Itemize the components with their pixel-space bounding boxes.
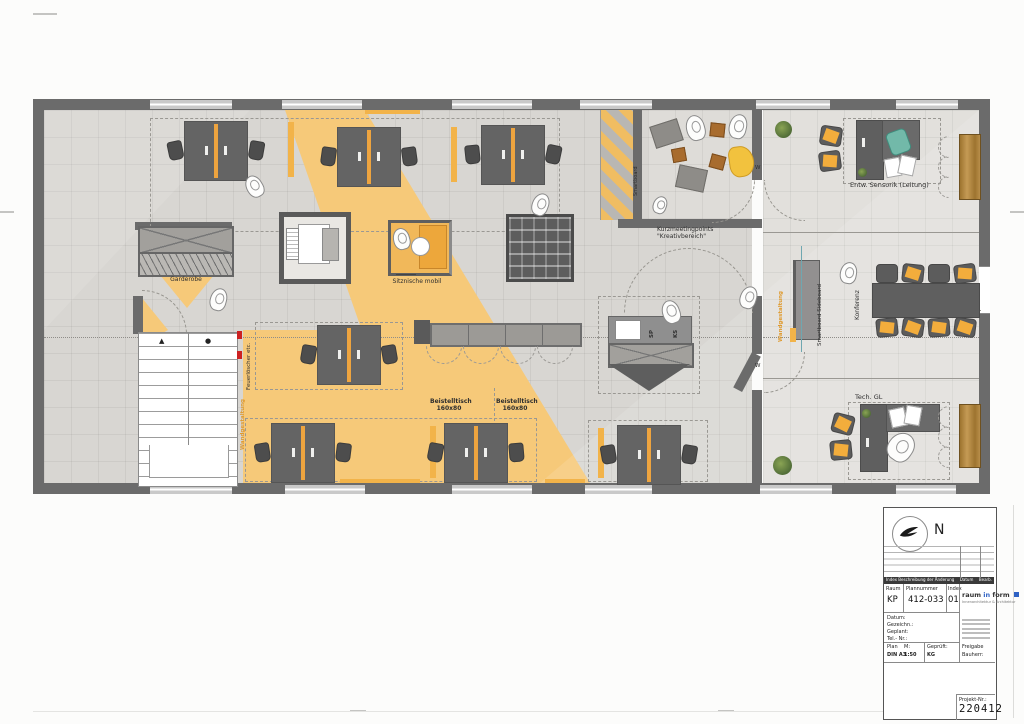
conference-chair xyxy=(928,264,950,283)
stool xyxy=(819,125,844,148)
label-sp: SP xyxy=(650,320,656,338)
window xyxy=(452,100,532,109)
wall-accent xyxy=(340,479,420,483)
project-number-cell: Projekt-Nr.: 220412 xyxy=(956,694,995,720)
wall-accent xyxy=(365,110,420,114)
office-chair xyxy=(508,442,525,462)
address-line xyxy=(962,619,990,621)
conference-chair xyxy=(901,317,925,339)
partition-line xyxy=(763,232,979,233)
drawing-sheet: Garderobe ▲ ● Feuerlöscher etc. Wandgest… xyxy=(0,0,1024,724)
label-konferenz: Konferenz xyxy=(855,280,861,320)
label-door-w: W xyxy=(755,165,760,172)
monitor xyxy=(862,138,865,147)
wood-sideboard xyxy=(959,404,981,468)
monitor xyxy=(866,438,869,447)
col-plannummer-label: Plannummer xyxy=(906,585,938,593)
north-label: N xyxy=(934,522,944,538)
logo-subtitle: Innenarchitektur & Architektur xyxy=(962,600,1015,604)
desk-cluster xyxy=(618,426,680,484)
conference-chair xyxy=(875,317,899,338)
monitor xyxy=(521,150,524,159)
chair-cushion xyxy=(957,320,974,335)
wall-partition xyxy=(752,390,762,483)
office-chair xyxy=(254,442,272,463)
label-sitznische: Sitznische mobil xyxy=(385,278,449,285)
logo-word-raum: raum xyxy=(962,591,981,599)
papers xyxy=(903,405,922,426)
crop-mark xyxy=(1010,211,1024,213)
desk-divider xyxy=(301,426,305,480)
booth-shelf xyxy=(286,228,299,260)
fire-extinguisher-icon xyxy=(237,351,242,359)
m-value: 1:50 xyxy=(904,651,916,659)
diamond-shelf xyxy=(506,214,574,282)
stair-landing xyxy=(149,445,229,478)
desk-cluster xyxy=(185,122,247,180)
crop-mark xyxy=(33,13,57,15)
window xyxy=(580,100,652,109)
revision-header-bearb: Bearb. xyxy=(979,577,992,584)
freigabe-cell: Freigabe Bauherr: xyxy=(959,642,995,663)
wood-sideboard xyxy=(959,134,981,200)
desk-divider xyxy=(647,428,651,482)
office-chair xyxy=(335,442,352,463)
stair-divider xyxy=(188,333,189,453)
window xyxy=(150,100,232,109)
address-line xyxy=(962,623,990,625)
label-wandgestaltung-left: Wandgestaltung xyxy=(241,388,247,450)
pouf xyxy=(709,122,725,137)
address-block xyxy=(962,616,990,642)
desk-cluster xyxy=(482,126,544,184)
table-line xyxy=(959,584,960,642)
address-line xyxy=(962,632,990,634)
chair-cushion xyxy=(879,321,894,333)
monitor xyxy=(292,448,295,457)
plant xyxy=(773,456,792,475)
conference-chair xyxy=(876,264,898,283)
conference-chair xyxy=(901,263,925,284)
label-feuerloescher: Feuerlöscher etc. xyxy=(247,328,253,390)
desk-divider xyxy=(367,130,371,184)
sheet-edge xyxy=(33,711,991,712)
title-block: N Index Beschreibung der Änderung Datum … xyxy=(883,507,997,720)
table-line xyxy=(960,546,961,577)
chair-cushion xyxy=(931,321,946,334)
desk-cluster xyxy=(272,424,334,482)
fields-block: Datum: Gezeichn.: Geplant: Tel.- Nr.: xyxy=(884,612,959,643)
side-table xyxy=(411,237,430,256)
window xyxy=(756,100,830,109)
label-smartboard: Smartboard xyxy=(634,150,639,196)
label-tech-gl: Tech. GL xyxy=(855,394,895,402)
fire-extinguisher-icon xyxy=(237,331,242,339)
chair-cushion xyxy=(958,268,973,280)
label-door-w: W xyxy=(755,363,760,370)
table-line xyxy=(924,642,925,662)
north-arrow-icon xyxy=(896,523,922,543)
pouf xyxy=(671,147,687,163)
freigabe-label: Freigabe Bauherr: xyxy=(962,643,995,659)
table-line xyxy=(946,584,947,612)
plant xyxy=(775,121,792,138)
label-smartboard-sideboard: Smartboard Sideboard xyxy=(818,258,824,346)
revision-header-datum: Datum xyxy=(960,577,974,584)
accent-piece xyxy=(790,328,796,342)
office-chair xyxy=(401,146,418,167)
label-line1: Kurzmeetingpoints xyxy=(657,226,713,233)
window xyxy=(896,100,958,109)
conference-table xyxy=(872,283,980,318)
revision-table xyxy=(884,546,994,577)
monitor xyxy=(484,448,487,457)
label-entw-sensorik: Entw. Sensorik (Leitung) xyxy=(850,182,960,190)
plannummer-value: 412-033 xyxy=(908,595,944,605)
monitor xyxy=(338,350,341,359)
monitor xyxy=(465,448,468,457)
m-label: M: xyxy=(904,643,910,651)
stool-cushion xyxy=(822,128,839,144)
label-garderobe: Garderobe xyxy=(155,276,217,283)
desk-divider xyxy=(214,124,218,178)
logo-cell: raum in form Innenarchitektur & Architek… xyxy=(959,584,995,612)
desk-cluster xyxy=(338,128,400,186)
stair-arrow-up: ▲ xyxy=(159,337,164,345)
projekt-nr-value: 220412 xyxy=(959,703,1003,715)
window xyxy=(282,100,362,109)
revision-header-left: Index Beschreibung der Änderung xyxy=(886,577,954,584)
shelf-zigzag xyxy=(600,110,633,220)
window xyxy=(452,485,532,494)
office-chair xyxy=(380,344,398,365)
geprueft-value: KG xyxy=(927,651,935,659)
logo-raum-in-form: raum in form xyxy=(962,591,1019,599)
kitchen-triangle xyxy=(608,364,690,391)
cabinet-end xyxy=(414,320,430,344)
stool xyxy=(818,150,843,173)
desk-plant xyxy=(858,168,867,177)
label-beistelltisch-1: Beistelltisch160x80 xyxy=(430,398,468,412)
stool-cushion xyxy=(834,416,852,433)
revision-header: Index Beschreibung der Änderung Datum Be… xyxy=(884,577,994,584)
kitchen-sink xyxy=(615,320,641,340)
desk-cluster xyxy=(445,424,507,482)
address-line xyxy=(962,628,990,630)
raum-value: KP xyxy=(887,595,898,605)
wardrobe-hatched xyxy=(138,252,234,277)
label-line2: "Kreativbereich" xyxy=(657,233,706,240)
sideboard-row xyxy=(430,323,582,347)
acoustic-panel xyxy=(451,127,457,182)
col-raum-label: Raum xyxy=(886,585,900,593)
geprueft-label: Geprüft: xyxy=(927,643,948,651)
logo-word-in: in xyxy=(983,591,990,599)
label-kurzmeetingpoints: Kurzmeetingpoints"Kreativbereich" xyxy=(657,226,747,240)
monitor xyxy=(657,450,660,459)
monitor xyxy=(205,146,208,155)
monitor xyxy=(357,350,360,359)
desk-divider xyxy=(474,426,478,480)
chair-cushion xyxy=(905,320,922,335)
monitor xyxy=(311,448,314,457)
desk-plant xyxy=(862,409,871,418)
monitor xyxy=(224,146,227,155)
conference-chair xyxy=(953,263,977,285)
plan-number-block: Raum Plannummer Index KP 412-033 01 xyxy=(884,584,959,613)
chair-cushion xyxy=(905,266,922,281)
glass-line xyxy=(801,246,802,352)
label-beistelltisch-2: Beistelltisch160x80 xyxy=(496,398,534,412)
crop-mark xyxy=(0,211,14,213)
label-text: Beistelltisch xyxy=(430,398,472,405)
locker-crossed xyxy=(138,226,234,255)
wall-accent xyxy=(545,479,585,483)
arrow-icon xyxy=(396,274,416,275)
monitor xyxy=(638,450,641,459)
logo-square-icon xyxy=(1014,592,1019,597)
label-size: 160x80 xyxy=(503,405,528,412)
wall-left xyxy=(33,99,44,494)
stair-arrow-down: ● xyxy=(205,337,211,345)
desk-divider xyxy=(511,128,515,182)
address-line xyxy=(962,637,990,639)
monitor xyxy=(377,152,380,161)
scale-row: Plan M: Geprüft: DIN A3 1:50 KG xyxy=(884,642,959,663)
booth-panel xyxy=(322,228,339,261)
label-size: 160x80 xyxy=(437,405,462,412)
office-chair xyxy=(599,444,617,465)
window xyxy=(896,485,956,494)
monitor xyxy=(502,150,505,159)
stool-cushion xyxy=(833,443,848,456)
staircase: ▲ ● xyxy=(138,332,238,487)
logo-word-form: form xyxy=(992,591,1009,599)
office-chair xyxy=(320,146,337,167)
plan-label: Plan xyxy=(887,643,898,651)
stool xyxy=(829,439,853,461)
monitor xyxy=(358,152,361,161)
acoustic-panel xyxy=(288,122,294,177)
window xyxy=(585,485,652,494)
window xyxy=(760,485,832,494)
stool-cushion xyxy=(823,155,838,168)
smartboard-sideboard xyxy=(793,260,820,340)
index-value: 01 xyxy=(948,595,959,605)
office-chair xyxy=(464,144,481,164)
conference-chair xyxy=(927,317,950,337)
label-text: Beistelltisch xyxy=(496,398,538,405)
desk-cluster xyxy=(318,326,380,384)
table-line xyxy=(903,584,904,612)
conference-chair xyxy=(953,317,977,339)
table-line xyxy=(980,546,981,577)
desk-divider xyxy=(347,328,351,382)
window xyxy=(285,485,365,494)
label-wandgestaltung-conference: Wandgestaltung xyxy=(779,262,785,342)
sheet-edge xyxy=(1013,505,1014,718)
